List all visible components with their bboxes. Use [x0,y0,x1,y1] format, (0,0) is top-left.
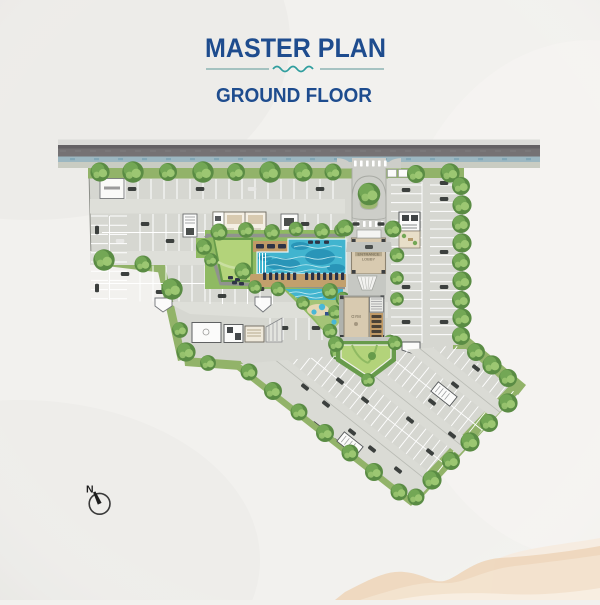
svg-text:GROUND FLOOR: GROUND FLOOR [216,84,372,107]
svg-text:LOBBY: LOBBY [362,257,376,262]
svg-text:N: N [86,484,94,496]
svg-text:GYM: GYM [351,314,361,319]
svg-text:MASTER PLAN: MASTER PLAN [205,33,386,63]
